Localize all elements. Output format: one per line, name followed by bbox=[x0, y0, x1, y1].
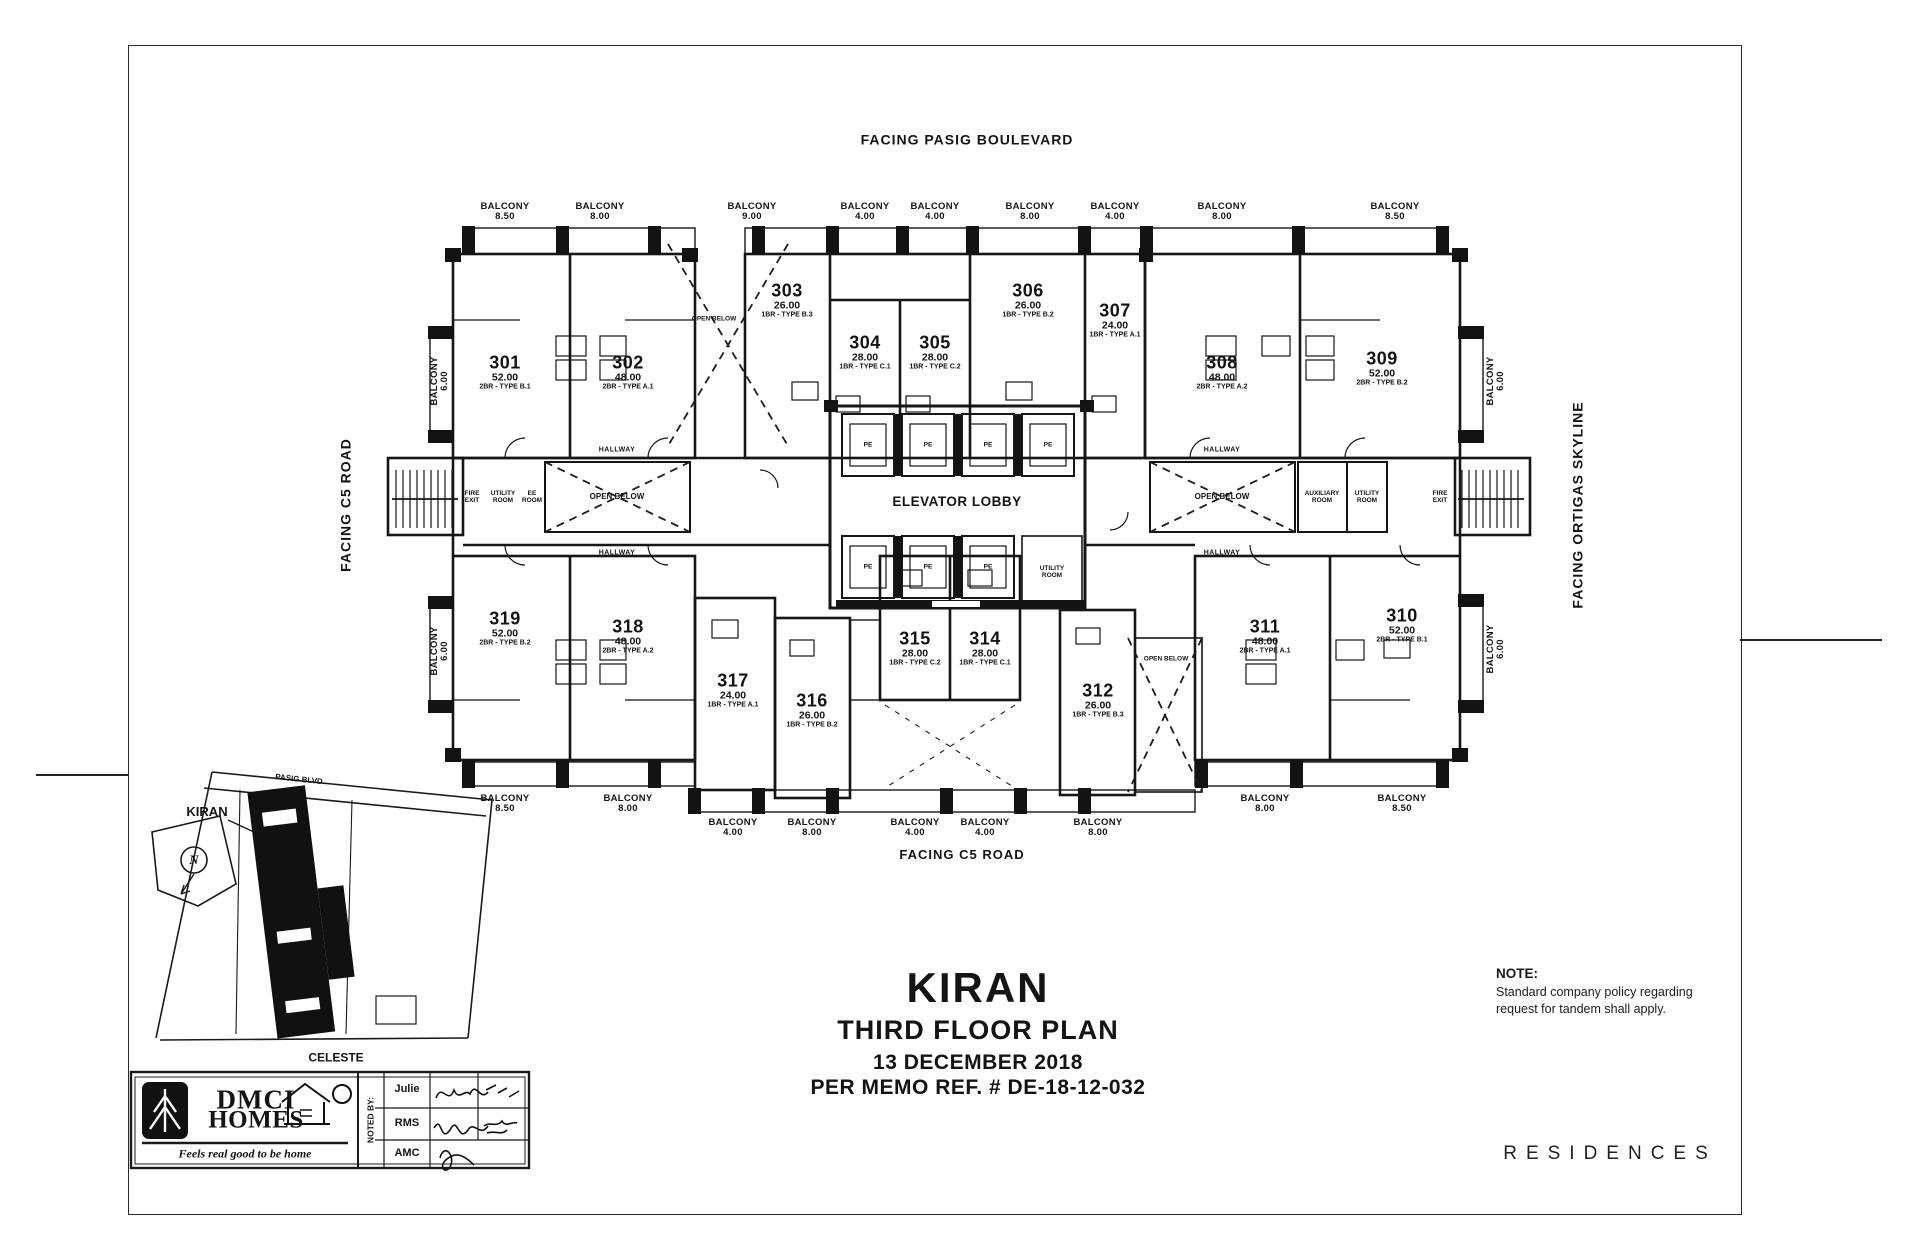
passenger-elevator-label: PE bbox=[984, 565, 993, 572]
utility-room-label: UTILITY ROOM bbox=[488, 490, 518, 504]
hallway-label: HALLWAY bbox=[599, 549, 635, 556]
balcony-label: BALCONY6.00 bbox=[1486, 624, 1506, 673]
passenger-elevator-label: PE bbox=[924, 443, 933, 450]
passenger-elevator-label: PE bbox=[1044, 443, 1053, 450]
floor-plan-title: THIRD FLOOR PLAN bbox=[837, 1016, 1118, 1044]
signatory-name: Julie bbox=[394, 1084, 419, 1096]
unit-312-label: 31226.001BR - TYPE B.3 bbox=[1072, 681, 1123, 718]
elevator-lobby-label: ELEVATOR LOBBY bbox=[892, 495, 1021, 509]
balcony-label: BALCONY8.50 bbox=[1377, 794, 1426, 814]
passenger-elevator-label: PE bbox=[924, 565, 933, 572]
north-arrow-label: N bbox=[189, 853, 198, 867]
floor-plan-sheet: FACING PASIG BOULEVARD FACING C5 ROAD FA… bbox=[0, 0, 1920, 1255]
fire-exit-label: FIRE EXIT bbox=[459, 490, 485, 504]
unit-315-label: 31528.001BR - TYPE C.2 bbox=[889, 629, 940, 666]
facing-pasig-boulevard-label: FACING PASIG BOULEVARD bbox=[861, 133, 1074, 148]
unit-306-label: 30626.001BR - TYPE B.2 bbox=[1002, 281, 1053, 318]
balcony-label: BALCONY8.00 bbox=[1005, 202, 1054, 222]
facing-c5-road-left-label: FACING C5 ROAD bbox=[339, 438, 354, 572]
balcony-label: BALCONY9.00 bbox=[727, 202, 776, 222]
facing-c5-road-bottom-label: FACING C5 ROAD bbox=[899, 848, 1024, 862]
inset-celeste-label: CELESTE bbox=[308, 1052, 363, 1065]
brand-tagline: Feels real good to be home bbox=[179, 1148, 312, 1161]
facing-ortigas-skyline-label: FACING ORTIGAS SKYLINE bbox=[1571, 401, 1586, 608]
unit-309-label: 30952.002BR - TYPE B.2 bbox=[1356, 349, 1407, 386]
balcony-label: BALCONY6.00 bbox=[1486, 356, 1506, 405]
open-below-label: OPEN BELOW bbox=[590, 493, 645, 501]
utility-room-label: UTILITY ROOM bbox=[1031, 565, 1073, 579]
unit-307-label: 30724.001BR - TYPE A.1 bbox=[1089, 301, 1140, 338]
open-below-label: OPEN BELOW bbox=[1144, 657, 1188, 664]
note-heading: NOTE: bbox=[1496, 966, 1746, 981]
unit-316-label: 31626.001BR - TYPE B.2 bbox=[786, 691, 837, 728]
balcony-label: BALCONY8.50 bbox=[480, 794, 529, 814]
unit-311-label: 31148.002BR - TYPE A.1 bbox=[1239, 617, 1290, 654]
unit-319-label: 31952.002BR - TYPE B.2 bbox=[479, 609, 530, 646]
balcony-label: BALCONY6.00 bbox=[430, 356, 450, 405]
project-title: KIRAN bbox=[907, 966, 1050, 1010]
balcony-label: BALCONY4.00 bbox=[890, 818, 939, 838]
hallway-label: HALLWAY bbox=[599, 446, 635, 453]
residences-wordmark: RESIDENCES bbox=[1503, 1144, 1717, 1164]
passenger-elevator-label: PE bbox=[864, 565, 873, 572]
balcony-label: BALCONY8.00 bbox=[787, 818, 836, 838]
balcony-label: BALCONY8.50 bbox=[480, 202, 529, 222]
unit-308-label: 30848.002BR - TYPE A.2 bbox=[1196, 353, 1247, 390]
noted-by-label: NOTED BY: bbox=[367, 1097, 376, 1143]
unit-310-label: 31052.002BR - TYPE B.1 bbox=[1376, 606, 1427, 643]
balcony-label: BALCONY8.00 bbox=[1073, 818, 1122, 838]
balcony-label: BALCONY8.00 bbox=[575, 202, 624, 222]
unit-301-label: 30152.002BR - TYPE B.1 bbox=[479, 353, 530, 390]
balcony-label: BALCONY6.00 bbox=[430, 626, 450, 675]
note-block: NOTE: Standard company policy regarding … bbox=[1496, 966, 1746, 1018]
balcony-label: BALCONY4.00 bbox=[960, 818, 1009, 838]
unit-305-label: 30528.001BR - TYPE C.2 bbox=[909, 333, 960, 370]
auxiliary-room-label: AUXILIARY ROOM bbox=[1302, 490, 1342, 504]
open-below-label: OPEN BELOW bbox=[692, 317, 736, 324]
balcony-label: BALCONY4.00 bbox=[708, 818, 757, 838]
memo-reference: PER MEMO REF. # DE-18-12-032 bbox=[811, 1077, 1146, 1099]
balcony-label: BALCONY8.50 bbox=[1370, 202, 1419, 222]
signatory-name: RMS bbox=[395, 1118, 419, 1130]
balcony-label: BALCONY8.00 bbox=[1240, 794, 1289, 814]
signatory-name: AMC bbox=[394, 1148, 419, 1160]
balcony-label: BALCONY8.00 bbox=[1197, 202, 1246, 222]
plan-date: 13 DECEMBER 2018 bbox=[873, 1052, 1083, 1074]
unit-318-label: 31848.002BR - TYPE A.2 bbox=[602, 617, 653, 654]
passenger-elevator-label: PE bbox=[984, 443, 993, 450]
unit-317-label: 31724.001BR - TYPE A.1 bbox=[707, 671, 758, 708]
utility-room-label: UTILITY ROOM bbox=[1351, 490, 1383, 504]
note-line: request for tandem shall apply. bbox=[1496, 1001, 1746, 1018]
unit-304-label: 30428.001BR - TYPE C.1 bbox=[839, 333, 890, 370]
fire-exit-label: FIRE EXIT bbox=[1427, 490, 1453, 504]
passenger-elevator-label: PE bbox=[864, 443, 873, 450]
hallway-label: HALLWAY bbox=[1204, 446, 1240, 453]
balcony-label: BALCONY4.00 bbox=[1090, 202, 1139, 222]
balcony-label: BALCONY8.00 bbox=[603, 794, 652, 814]
unit-314-label: 31428.001BR - TYPE C.1 bbox=[959, 629, 1010, 666]
inset-kiran-label: KIRAN bbox=[186, 805, 227, 819]
ee-room-label: EE ROOM bbox=[519, 490, 545, 504]
unit-302-label: 30248.002BR - TYPE A.1 bbox=[602, 353, 653, 390]
dmci-homes-logo-text: DMCI HOMES bbox=[208, 1089, 304, 1132]
unit-303-label: 30326.001BR - TYPE B.3 bbox=[761, 281, 812, 318]
note-line: Standard company policy regarding bbox=[1496, 984, 1746, 1001]
balcony-label: BALCONY4.00 bbox=[840, 202, 889, 222]
balcony-label: BALCONY4.00 bbox=[910, 202, 959, 222]
hallway-label: HALLWAY bbox=[1204, 549, 1240, 556]
open-below-label: OPEN BELOW bbox=[1195, 493, 1250, 501]
